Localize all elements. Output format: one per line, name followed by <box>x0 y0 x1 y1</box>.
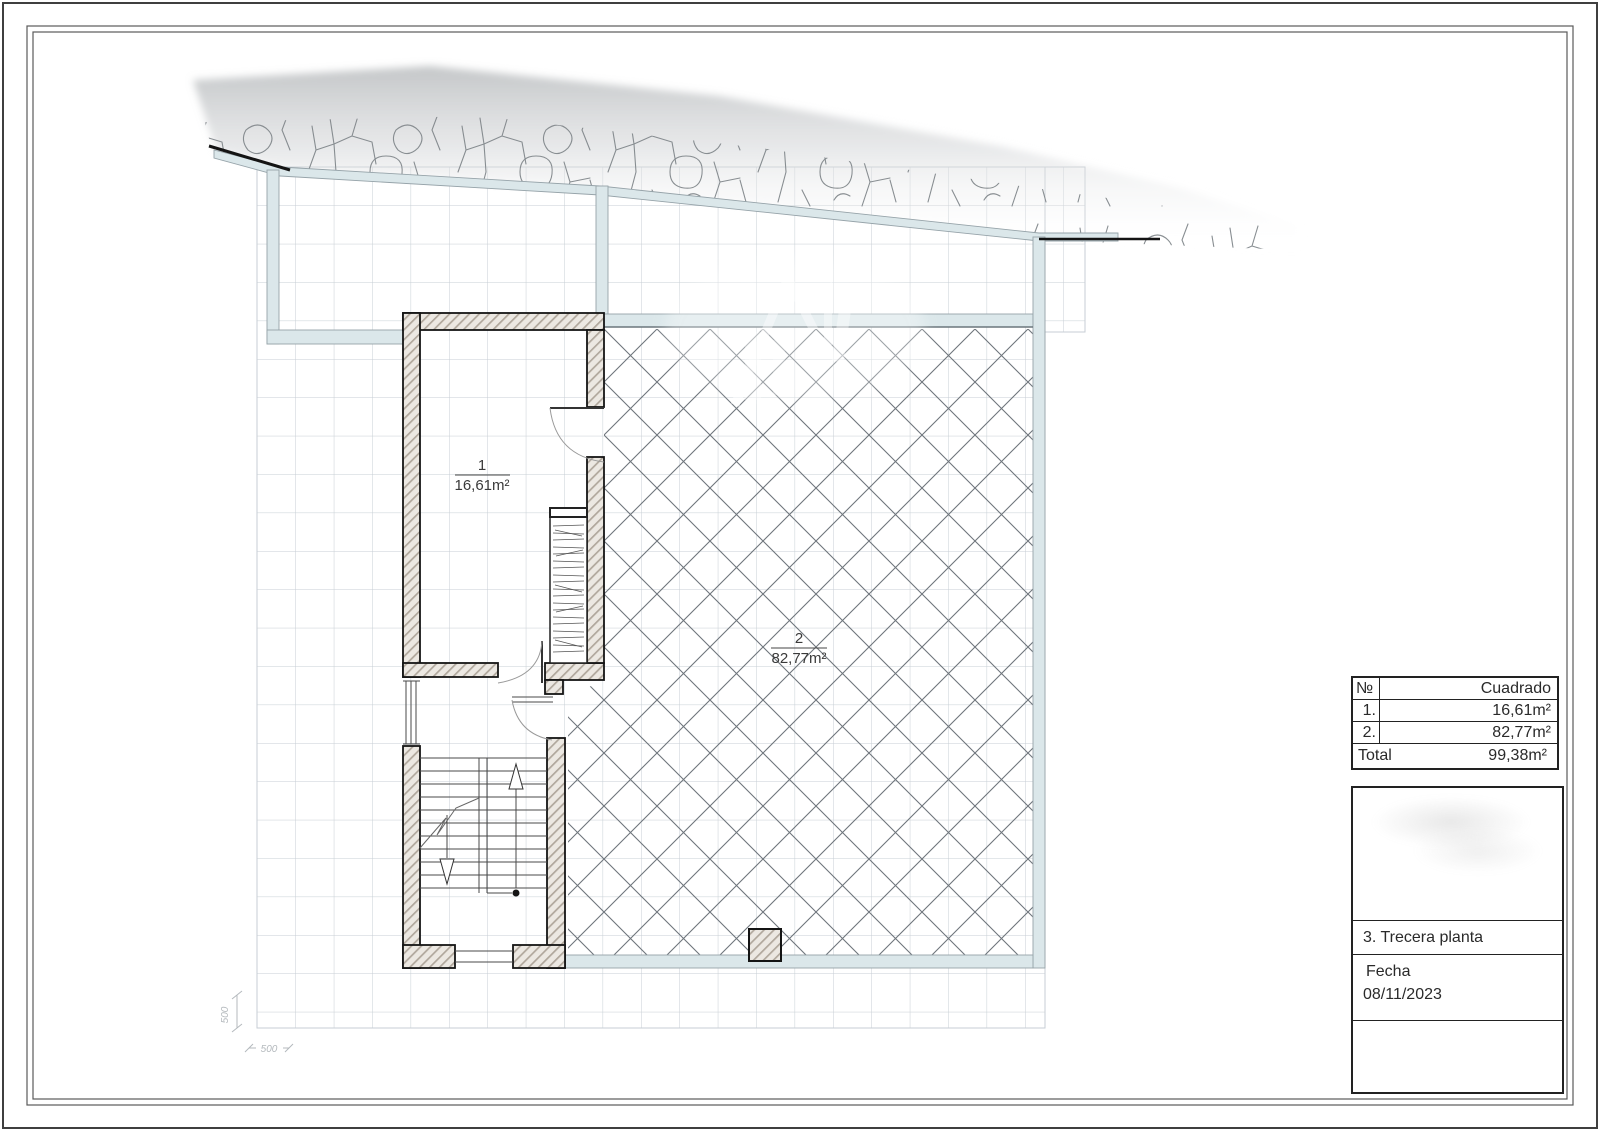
wall-room1-left <box>403 313 420 677</box>
wall-room1-top <box>403 313 604 330</box>
date-row: Fecha 08/11/2023 <box>1353 954 1562 1020</box>
row-area: 16,61m² <box>1380 702 1557 720</box>
date-label: Fecha <box>1366 963 1562 981</box>
row-number: 2. <box>1353 722 1380 743</box>
wall-stair-bottom-right <box>513 945 565 968</box>
faded-logo <box>1413 828 1543 874</box>
area-table-header-name: Cuadrado <box>1380 680 1557 698</box>
column <box>749 929 781 961</box>
room2-bottom-band <box>565 955 1033 968</box>
stair-start-dot <box>513 890 520 897</box>
row-number: 1. <box>1353 700 1380 721</box>
total-value: 99,38m² <box>1392 747 1557 765</box>
parapet-left <box>267 170 279 344</box>
wall-stair-left <box>403 746 420 968</box>
area-table-row: 1. 16,61m² <box>1353 699 1557 721</box>
title-block: 3. Trecera planta Fecha 08/11/2023 <box>1351 786 1564 1094</box>
plan-name: 3. Trecera planta <box>1363 929 1483 947</box>
parapet-mid <box>596 186 608 314</box>
drawing-sheet: 1 16,61m² 2 82,77m² 500 500 № Cuadrado 1… <box>0 0 1600 1131</box>
dim-vertical-value: 500 <box>220 1006 231 1023</box>
dimension-vertical: 500 <box>220 991 242 1032</box>
parapet-right <box>1033 237 1045 968</box>
room1-area: 16,61m² <box>454 477 509 494</box>
wall-stair-right <box>547 738 565 968</box>
title-block-logo-area <box>1353 788 1562 920</box>
date-value: 08/11/2023 <box>1363 986 1562 1004</box>
wall-room1-right-lower <box>587 457 604 663</box>
dim-horizontal-value: 500 <box>261 1044 278 1055</box>
wall-step-stub <box>545 680 563 694</box>
wall-room1-bottom-left <box>403 663 498 677</box>
total-label: Total <box>1353 747 1392 765</box>
wall-room1-right-upper <box>587 330 604 407</box>
area-table-header: № Cuadrado <box>1353 678 1557 699</box>
room1-number: 1 <box>478 457 486 474</box>
row-area: 82,77m² <box>1380 724 1557 742</box>
area-table-header-num: № <box>1353 678 1380 699</box>
wall-stair-bottom-left <box>403 945 455 968</box>
room2-number: 2 <box>795 630 803 647</box>
area-table-total-row: Total 99,38m² <box>1353 743 1557 768</box>
room2-area: 82,77m² <box>771 650 826 667</box>
wardrobe <box>550 508 587 663</box>
empty-row <box>1353 1020 1562 1092</box>
wall-room1-bottom-right <box>545 663 604 680</box>
dimension-horizontal: 500 <box>245 1044 293 1055</box>
area-table-row: 2. 82,77m² <box>1353 721 1557 743</box>
terrace-bottom-band <box>267 330 405 344</box>
area-table: № Cuadrado 1. 16,61m² 2. 82,77m² Total 9… <box>1351 676 1559 770</box>
plan-name-row: 3. Trecera planta <box>1353 920 1562 954</box>
